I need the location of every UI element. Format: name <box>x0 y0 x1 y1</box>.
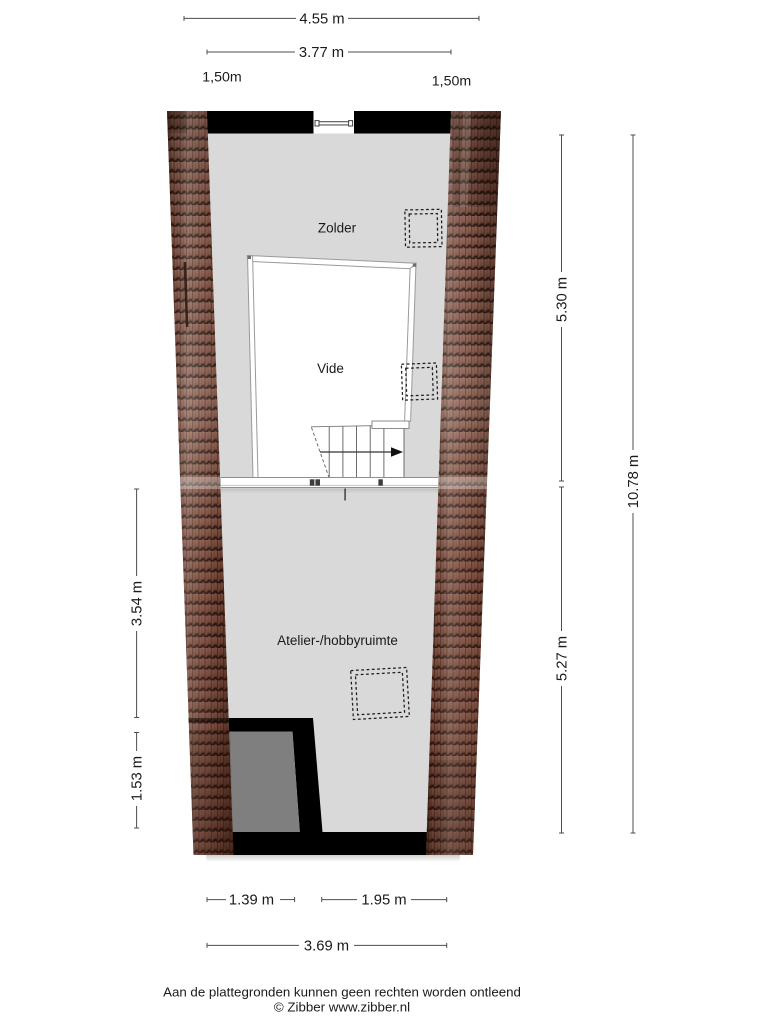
svg-text:3.69 m: 3.69 m <box>304 938 349 954</box>
svg-text:3.54 m: 3.54 m <box>130 581 146 626</box>
svg-text:4.55 m: 4.55 m <box>299 12 344 28</box>
svg-text:Vide: Vide <box>317 361 344 376</box>
svg-text:1.53 m: 1.53 m <box>130 756 146 801</box>
svg-text:1,50m: 1,50m <box>202 70 241 86</box>
svg-text:Aan de plattegronden kunnen ge: Aan de plattegronden kunnen geen rechten… <box>163 985 521 1000</box>
svg-text:3.77 m: 3.77 m <box>299 45 344 61</box>
svg-text:Zolder: Zolder <box>318 221 357 236</box>
svg-text:© Zibber www.zibber.nl: © Zibber www.zibber.nl <box>274 1000 410 1015</box>
svg-text:1.39 m: 1.39 m <box>229 893 274 909</box>
svg-text:1,50m: 1,50m <box>432 74 471 90</box>
svg-text:5.27 m: 5.27 m <box>555 636 571 681</box>
svg-text:5.30 m: 5.30 m <box>555 277 571 322</box>
svg-text:Atelier-/hobbyruimte: Atelier-/hobbyruimte <box>277 633 398 648</box>
svg-text:10.78 m: 10.78 m <box>626 455 642 508</box>
svg-text:1.95 m: 1.95 m <box>361 893 406 909</box>
